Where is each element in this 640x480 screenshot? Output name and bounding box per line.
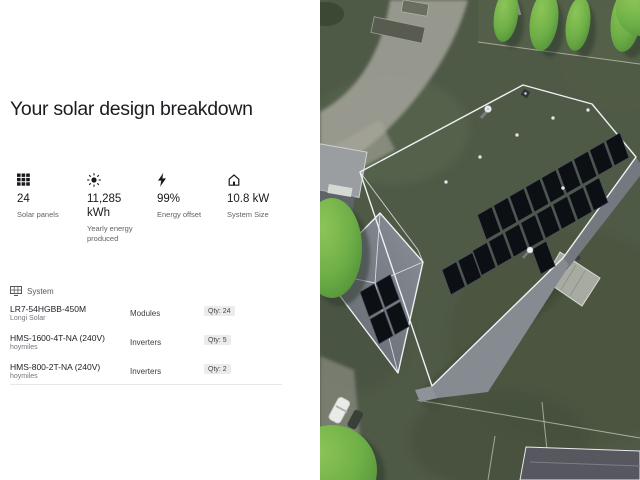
table-divider [10,384,282,385]
component-type: Inverters [130,338,161,347]
component-manufacturer: hoymiles [10,373,38,380]
solar-design-app: Your solar design breakdown 24 Solar pan… [0,0,640,480]
aerial-render [320,0,640,480]
quantity-badge: Qty: 5 [204,335,231,345]
bottom-neighbor-roof [520,447,640,480]
component-type: Modules [130,309,160,318]
stat-value: 24 [17,192,75,206]
quantity-badge: Qty: 2 [204,364,231,374]
stat-label: Energy offset [157,210,213,220]
stat-system-size: 10.8 kW System Size [227,173,291,220]
system-table: LR7-54HGBB-450M Longi Solar Modules Qty:… [10,300,282,387]
table-row: HMS-800-2T-NA (240V) hoymiles Inverters … [10,358,282,387]
stat-yearly-energy: 11,285 kWh Yearly energy produced [87,173,151,243]
solar-panel-grid-icon [17,173,31,187]
system-section-label: System [27,287,54,296]
table-row: LR7-54HGBB-450M Longi Solar Modules Qty:… [10,300,282,329]
component-manufacturer: Longi Solar [10,315,45,322]
component-manufacturer: hoymiles [10,344,38,351]
stat-value: 10.8 kW [227,192,285,206]
stat-value: 11,285 kWh [87,192,145,220]
stat-energy-offset: 99% Energy offset [157,173,221,220]
design-summary-panel: Your solar design breakdown 24 Solar pan… [0,0,320,480]
stat-label: Solar panels [17,210,73,220]
system-section-header: System [10,286,54,296]
bolt-icon [157,173,167,187]
home-icon [227,173,241,187]
stat-value: 99% [157,192,215,206]
quantity-badge: Qty: 24 [204,306,235,316]
component-name: HMS-800-2T-NA (240V) [10,362,100,372]
component-name: HMS-1600-4T-NA (240V) [10,333,105,343]
sun-icon [87,173,101,187]
component-type: Inverters [130,367,161,376]
system-panel-icon [10,286,22,296]
page-title: Your solar design breakdown [10,98,253,121]
aerial-design-viewport[interactable] [320,0,640,480]
stat-label: System Size [227,210,283,220]
stat-label: Yearly energy produced [87,224,143,243]
stat-solar-panels: 24 Solar panels [17,173,81,220]
table-row: HMS-1600-4T-NA (240V) hoymiles Inverters… [10,329,282,358]
component-name: LR7-54HGBB-450M [10,304,86,314]
